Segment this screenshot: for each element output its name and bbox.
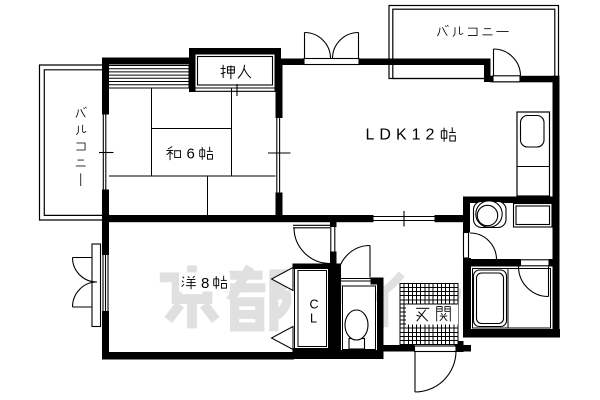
svg-text:LDK12: LDK12 bbox=[366, 127, 440, 144]
svg-text:6: 6 bbox=[187, 146, 195, 163]
svg-text:L: L bbox=[310, 312, 317, 326]
svg-text:8: 8 bbox=[201, 275, 209, 292]
svg-text:C: C bbox=[310, 298, 319, 312]
